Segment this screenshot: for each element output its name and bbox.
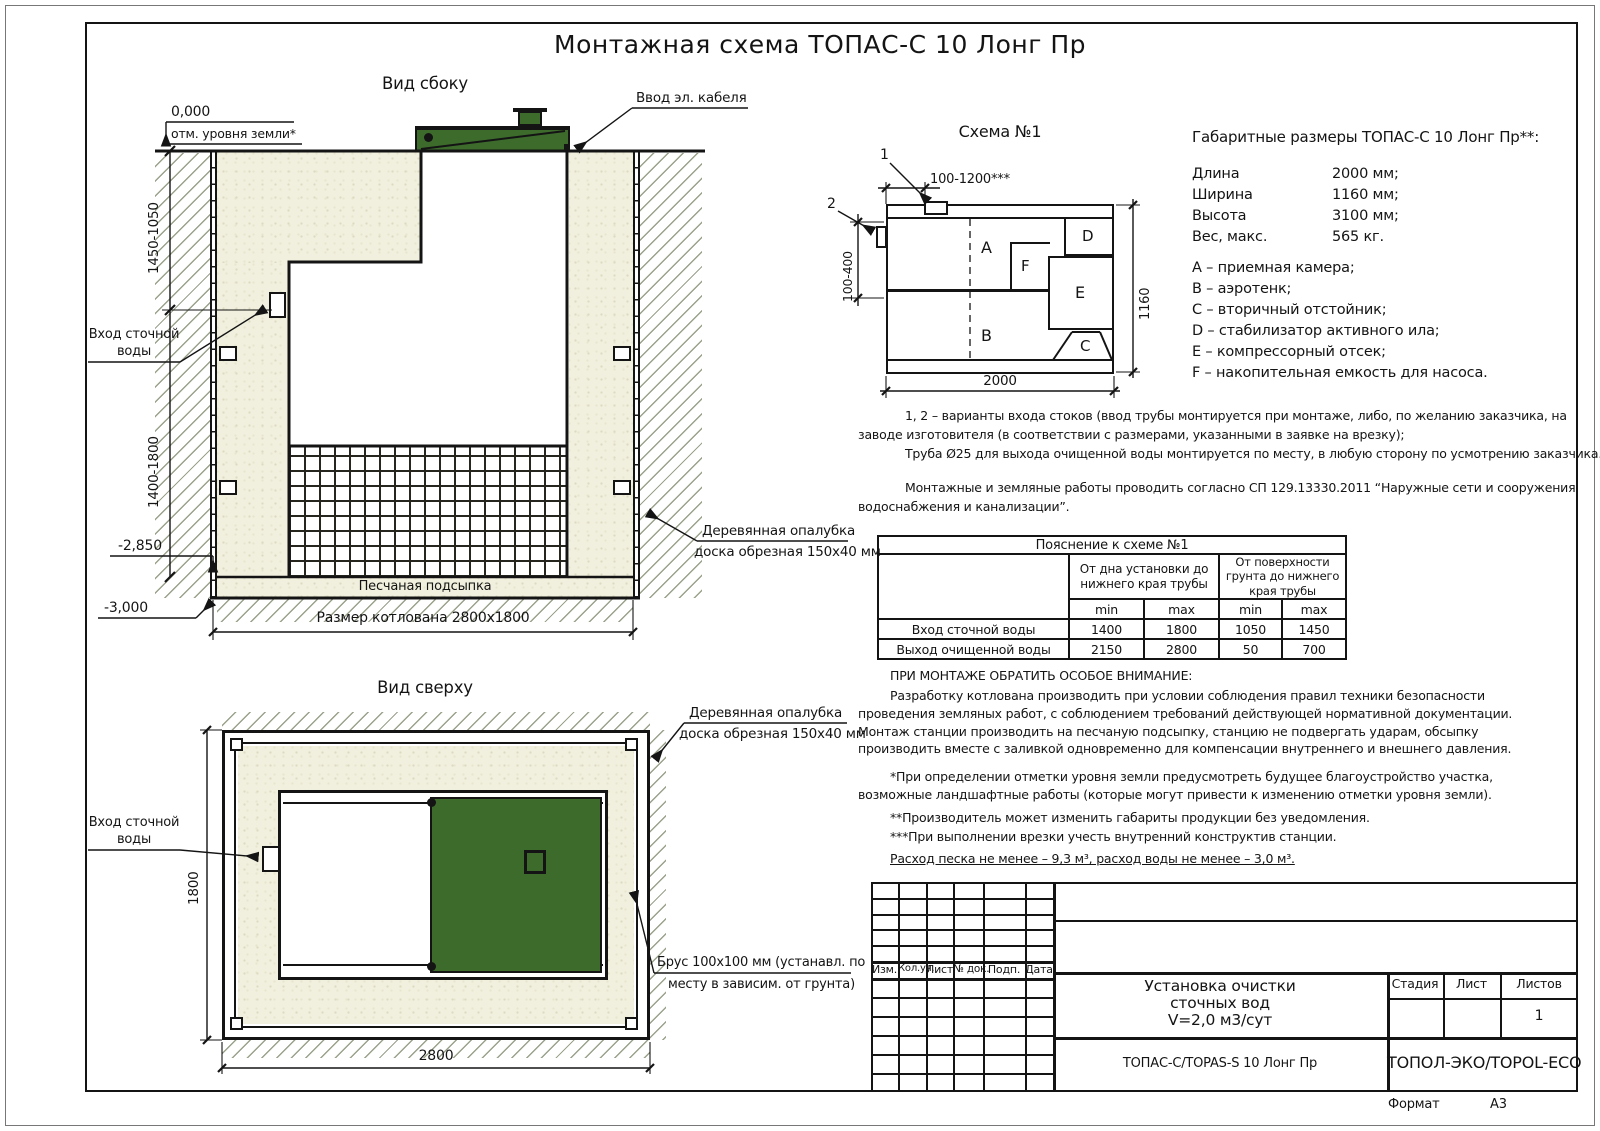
schema-comp-c: C — [1080, 337, 1090, 355]
topview-hatch-top — [222, 712, 650, 730]
warning-note2: **Производитель может изменить габариты … — [890, 810, 1370, 825]
doc-title-line2: сточных вод — [1053, 994, 1387, 1013]
legend-item-f: F – накопительная емкость для насоса. — [1192, 365, 1488, 382]
dim-1450-1050: 1450-1050 — [146, 202, 162, 274]
side-view-title: Вид сбоку — [340, 74, 510, 94]
tank-lid-side — [415, 126, 570, 152]
table-row-label: Вход сточной воды — [878, 619, 1069, 639]
table-row: Выход очищенной воды 2150 2800 50 700 — [878, 639, 1346, 659]
table-min2: min — [1219, 599, 1282, 619]
topview-hinge-dot-bottom — [427, 962, 436, 971]
zero-elevation-label: 0,000 — [171, 104, 210, 121]
schema-dim-100-400: 100-400 — [840, 251, 855, 302]
tank-body — [289, 262, 567, 446]
page-title: Монтажная схема ТОПАС-С 10 Лонг Пр — [500, 30, 1140, 60]
rev-header-data: Дата — [1025, 963, 1053, 976]
schema-inlet2 — [876, 226, 887, 248]
schema-comp-b: B — [981, 326, 992, 345]
spec-value-weight: 565 кг. — [1332, 229, 1384, 246]
formwork-plank-right — [633, 152, 640, 598]
schema-compartment-f-border — [1010, 242, 1050, 290]
legend-item-d: D – стабилизатор активного ила; — [1192, 323, 1440, 340]
formwork-label-side-1: Деревянная опалубка — [702, 523, 855, 539]
topview-vent-square — [524, 850, 546, 874]
ground-hatch-right — [640, 153, 702, 598]
rev-header-izm: Изм. — [871, 963, 898, 976]
company-name: ТОПОЛ-ЭКО/TOPOL-ECO — [1387, 1053, 1578, 1072]
formwork-clamp-left-lower — [219, 480, 237, 495]
spec-label-width: Ширина — [1192, 187, 1253, 204]
topview-hatch-right — [650, 730, 666, 1040]
ground-level-label: отм. уровня земли* — [171, 126, 296, 141]
table-min1: min — [1069, 599, 1144, 619]
formwork-corner-tab-br — [625, 1017, 638, 1030]
cable-entry-label: Ввод эл. кабеля — [636, 90, 747, 106]
schema-marker-1: 1 — [880, 147, 889, 164]
schema-dim-1160: 1160 — [1138, 288, 1153, 320]
formwork-label-top-1: Деревянная опалубка — [689, 705, 842, 721]
table-max2: max — [1282, 599, 1346, 619]
table-title: Пояснение к схеме №1 — [878, 536, 1346, 554]
beam-label-1: Брус 100х100 мм (устанавл. по — [657, 955, 865, 971]
schema-comp-f: F — [1021, 257, 1029, 275]
table-corner-cell — [878, 554, 1069, 619]
formwork-clamp-left-upper — [219, 346, 237, 361]
rev-header-podp: Подп. — [983, 963, 1025, 976]
elev-3000-label: -3,000 — [104, 600, 148, 617]
note-sp-line2: водоснабжения и канализации”. — [858, 499, 1069, 514]
top-view-title: Вид сверху — [340, 678, 510, 698]
rev-header-ndok: № док. — [953, 963, 983, 976]
schema-comp-d: D — [1082, 227, 1093, 245]
topview-hinge-dot-top — [427, 798, 436, 807]
table-max1: max — [1144, 599, 1219, 619]
consumption-note: Расход песка не менее – 9,3 м³, расход в… — [890, 851, 1295, 866]
cable-gland — [564, 144, 570, 150]
spec-value-width: 1160 мм; — [1332, 187, 1399, 204]
schema-inlet1 — [924, 201, 948, 215]
rev-header-koluch: Кол.уч. — [898, 963, 926, 975]
legend-item-b: B – аэротенк; — [1192, 281, 1291, 298]
beam-label-2: месту в зависим. от грунта) — [668, 977, 855, 993]
topview-lid-green — [430, 797, 602, 973]
elev-2850-label: -2,850 — [118, 538, 162, 555]
schema-base-line — [888, 359, 1112, 361]
sheets-label: Листов — [1500, 976, 1578, 991]
schema-dim-2000: 2000 — [955, 373, 1045, 389]
tank-lower-grid-section — [289, 446, 567, 577]
sand-backfill-right — [569, 152, 633, 577]
schema-comp-a: A — [981, 238, 992, 257]
table-row-label: Выход очищенной воды — [878, 639, 1069, 659]
spec-label-height: Высота — [1192, 208, 1246, 225]
format-label: Формат — [1388, 1097, 1440, 1113]
formwork-corner-tab-tr — [625, 738, 638, 751]
spec-value-length: 2000 мм; — [1332, 166, 1399, 183]
dim-1400-1800: 1400-1800 — [146, 436, 162, 508]
dim-2800: 2800 — [396, 1048, 476, 1065]
spec-label-length: Длина — [1192, 166, 1239, 183]
table-group1-header: От дна установки до нижнего края трубы — [1069, 554, 1219, 599]
pit-size-label: Размер котлована 2800х1800 — [288, 610, 558, 627]
sheets-value: 1 — [1500, 1008, 1578, 1025]
inlet-label-side-1: Вход сточной — [84, 327, 184, 343]
lid-vent-pipe — [518, 111, 542, 126]
dim-1800: 1800 — [186, 871, 202, 905]
legend-item-a: A – приемная камера; — [1192, 260, 1355, 277]
format-value: А3 — [1490, 1097, 1507, 1113]
inlet-pipe-side — [269, 292, 286, 318]
note-sp-line1: Монтажные и земляные работы проводить со… — [905, 480, 1575, 495]
ground-hatch-left — [155, 153, 210, 598]
inlet-pipe-top — [262, 846, 280, 872]
note-variants-line1: 1, 2 – варианты входа стоков (ввод трубы… — [905, 408, 1567, 423]
specs-heading: Габаритные размеры ТОПАС-С 10 Лонг Пр**: — [1192, 128, 1539, 146]
schema-marker-2: 2 — [827, 196, 836, 213]
tank-neck — [421, 152, 567, 262]
doc-title-line1: Установка очистки — [1053, 977, 1387, 996]
formwork-plank-left — [210, 152, 217, 598]
warning-note1: *При определении отметки уровня земли пр… — [858, 768, 1542, 804]
spec-value-height: 3100 мм; — [1332, 208, 1399, 225]
schema-explanation-table: Пояснение к схеме №1 От дна установки до… — [877, 535, 1347, 660]
table-row: Вход сточной воды 1400 1800 1050 1450 — [878, 619, 1346, 639]
formwork-corner-tab-bl — [230, 1017, 243, 1030]
table-group2-header: От поверхности грунта до нижнего края тр… — [1219, 554, 1346, 599]
legend-item-e: E – компрессорный отсек; — [1192, 344, 1386, 361]
schema-title: Схема №1 — [930, 122, 1070, 141]
doc-title-line3: V=2,0 м3/сут — [1053, 1011, 1387, 1030]
inlet-label-top-2: воды — [84, 832, 184, 848]
stage-label: Стадия — [1387, 976, 1443, 991]
sand-bedding-label: Песчаная подсыпка — [280, 579, 570, 595]
schema-comp-e: E — [1075, 283, 1085, 302]
formwork-corner-tab-tl — [230, 738, 243, 751]
warning-heading: ПРИ МОНТАЖЕ ОБРАТИТЬ ОСОБОЕ ВНИМАНИЕ: — [890, 668, 1192, 683]
warning-body: Разработку котлована производить при усл… — [858, 687, 1536, 758]
formwork-label-side-2: доска обрезная 150х40 мм — [694, 544, 881, 560]
note-variants-line2: заводе изготовителя (в соответствии с ра… — [858, 427, 1404, 442]
inlet-label-side-2: воды — [84, 344, 184, 360]
formwork-clamp-right-lower — [613, 480, 631, 495]
lid-hinge-dot — [424, 133, 433, 142]
formwork-clamp-right-upper — [613, 346, 631, 361]
spec-label-weight: Вес, макс. — [1192, 229, 1267, 246]
sheet-label: Лист — [1443, 976, 1500, 991]
schema-dim-100-1200: 100-1200*** — [930, 172, 1010, 188]
note-pipe-line: Труба Ø25 для выхода очищенной воды монт… — [905, 446, 1600, 461]
legend-item-c: C – вторичный отстойник; — [1192, 302, 1386, 319]
model-name: ТОПАС-С/TOPAS-S 10 Лонг Пр — [1053, 1056, 1387, 1072]
formwork-label-top-2: доска обрезная 150х40 мм — [679, 726, 866, 742]
drawing-sheet: Пояснение к схеме №1 От дна установки до… — [0, 0, 1600, 1131]
rev-header-list: Лист — [926, 963, 953, 976]
warning-note3: ***При выполнении врезки учесть внутренн… — [890, 829, 1336, 844]
sand-backfill-upper-left — [217, 152, 420, 263]
inlet-label-top-1: Вход сточной — [84, 815, 184, 831]
